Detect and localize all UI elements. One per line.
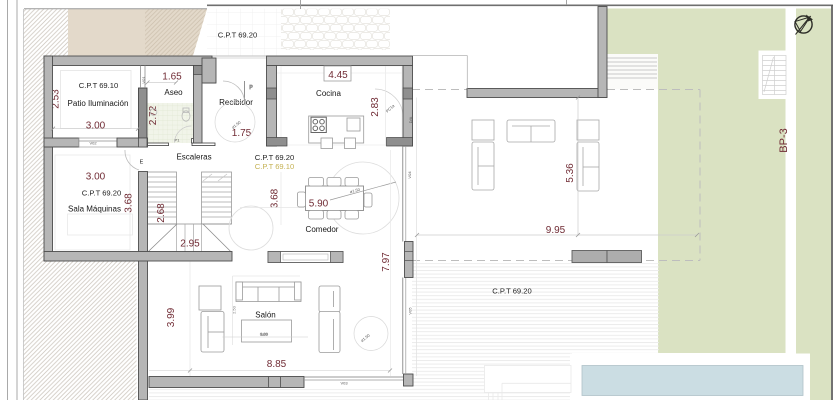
svg-text:V05: V05	[408, 307, 413, 315]
svg-text:Comedor: Comedor	[306, 225, 339, 234]
svg-text:Sala Máquinas: Sala Máquinas	[68, 205, 121, 214]
svg-text:Escaleras: Escaleras	[176, 153, 211, 162]
svg-text:2.50: 2.50	[232, 305, 237, 314]
svg-text:1.65: 1.65	[162, 72, 182, 83]
svg-text:3.99: 3.99	[166, 307, 177, 327]
svg-text:3.68: 3.68	[270, 188, 281, 208]
svg-text:Patio Iluminación: Patio Iluminación	[68, 99, 129, 108]
svg-text:Cocina: Cocina	[316, 89, 341, 98]
svg-text:C.P.T 69.20: C.P.T 69.20	[218, 31, 257, 40]
svg-text:3.00: 3.00	[86, 121, 106, 132]
svg-text:2.83: 2.83	[370, 97, 381, 117]
svg-text:BP-3: BP-3	[778, 128, 790, 152]
svg-text:1.75: 1.75	[232, 128, 252, 139]
svg-text:E: E	[140, 160, 144, 166]
svg-text:3.00: 3.00	[260, 332, 269, 337]
svg-text:V04: V04	[407, 171, 412, 179]
svg-text:P1: P1	[175, 138, 181, 143]
svg-text:4.45: 4.45	[328, 70, 348, 81]
svg-text:C.P.T 69.10: C.P.T 69.10	[255, 162, 294, 171]
svg-text:2.68: 2.68	[156, 203, 167, 223]
svg-text:V02: V02	[89, 141, 97, 146]
svg-text:Salón: Salón	[255, 311, 275, 320]
svg-text:V01: V01	[141, 76, 146, 84]
svg-text:5.90: 5.90	[309, 199, 329, 210]
svg-text:V03: V03	[340, 381, 348, 386]
svg-text:C.P.T 69.20: C.P.T 69.20	[492, 287, 531, 296]
svg-text:C.P.T 69.10: C.P.T 69.10	[79, 81, 118, 90]
svg-text:8.85: 8.85	[267, 359, 287, 370]
svg-text:D/A: D/A	[408, 116, 413, 123]
svg-text:Recibidor: Recibidor	[219, 98, 253, 107]
svg-text:2.95: 2.95	[180, 239, 200, 250]
svg-text:C.P.T 69.20: C.P.T 69.20	[255, 153, 294, 162]
svg-text:9.95: 9.95	[546, 225, 566, 236]
svg-text:5.36: 5.36	[565, 163, 576, 183]
svg-text:Aseo: Aseo	[164, 88, 183, 97]
svg-text:3.68: 3.68	[124, 193, 135, 213]
svg-text:3.00: 3.00	[86, 172, 106, 183]
svg-text:C.P.T 69.20: C.P.T 69.20	[82, 189, 121, 198]
